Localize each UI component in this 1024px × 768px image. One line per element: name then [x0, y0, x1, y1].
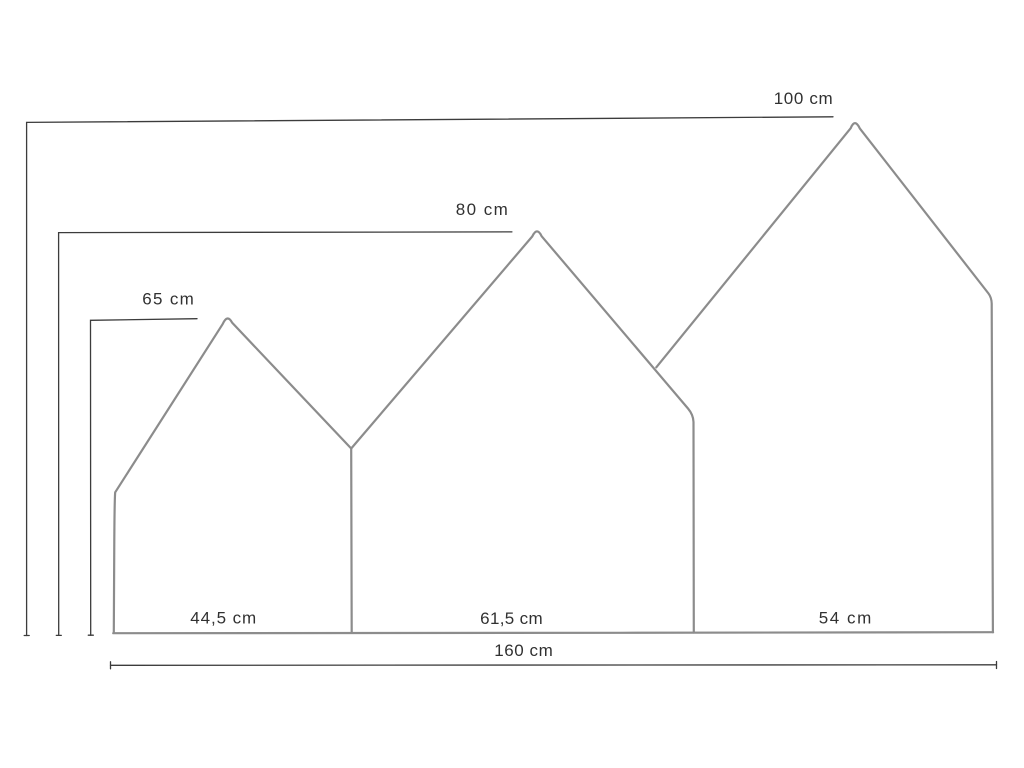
svg-text:100 cm: 100 cm — [774, 89, 833, 108]
svg-text:160 cm: 160 cm — [494, 641, 553, 660]
svg-text:54 cm: 54 cm — [819, 609, 872, 628]
svg-text:44,5 cm: 44,5 cm — [190, 608, 256, 627]
svg-text:61,5 cm: 61,5 cm — [480, 609, 543, 628]
svg-text:80 cm: 80 cm — [456, 200, 508, 219]
svg-text:65 cm: 65 cm — [142, 289, 194, 308]
